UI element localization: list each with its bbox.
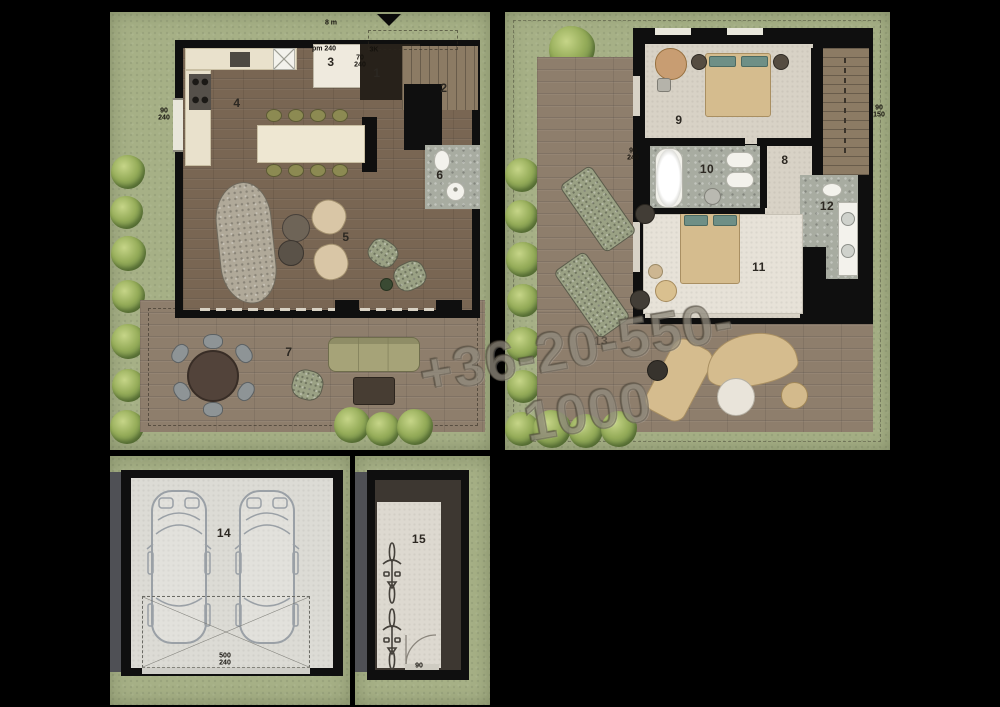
round-rug-icon (655, 48, 687, 80)
bed-pouf-icon (655, 280, 677, 302)
nightstand-icon (773, 54, 789, 70)
tree-icon (110, 410, 144, 444)
toilet-icon (434, 150, 450, 171)
coffee-table-icon (282, 214, 310, 242)
tree-icon (111, 155, 145, 189)
window-icon (727, 28, 763, 35)
pillow-icon (684, 215, 708, 226)
coffee-table-icon (278, 240, 304, 266)
sink-icon (446, 182, 465, 201)
sink-icon (841, 244, 855, 258)
bathtub-icon (655, 148, 683, 208)
garage-plan (110, 456, 350, 705)
door-opening (405, 664, 439, 670)
ground-floor-plan (110, 12, 490, 450)
side-table-icon (630, 290, 650, 310)
stair-arrow (844, 58, 846, 158)
dining-chair-icon (310, 164, 326, 177)
retaining-wall (355, 472, 367, 672)
dining-chair-icon (332, 164, 348, 177)
window-icon (173, 98, 183, 152)
kitchen-appliance (230, 52, 250, 67)
tree-icon (334, 407, 370, 443)
pillow-icon (713, 215, 737, 226)
stove-icon (189, 74, 211, 110)
sink-icon (726, 152, 754, 168)
round-pouf-icon (717, 378, 755, 416)
entrance-marker-icon (377, 14, 401, 26)
sliding-door-line (200, 308, 436, 311)
staircase (823, 48, 869, 178)
stool-icon (704, 188, 721, 205)
round-pouf-icon (781, 382, 808, 409)
stool-icon (657, 78, 671, 92)
tree-icon (397, 409, 433, 445)
dining-table (257, 125, 365, 163)
sink-icon (726, 172, 754, 188)
garage-door (142, 667, 310, 674)
nightstand-icon (691, 54, 707, 70)
bed-pouf-icon (648, 264, 663, 279)
wall-column (858, 175, 872, 291)
outdoor-coffee-table-icon (353, 377, 395, 405)
upper-floor-plan (505, 12, 890, 450)
plant-icon (380, 278, 393, 291)
outdoor-chair-icon (203, 334, 223, 349)
storage-plan (355, 456, 490, 705)
tree-icon (569, 414, 603, 448)
porch-outline (368, 30, 458, 50)
wall-stub (436, 300, 462, 318)
tree-icon (111, 236, 146, 271)
bicycle-icon (381, 608, 403, 670)
stair-core (404, 84, 442, 150)
dining-chair-icon (288, 109, 304, 122)
terrace-door-icon (633, 76, 640, 116)
outdoor-table-icon (187, 350, 239, 402)
side-table-icon (647, 360, 668, 381)
outdoor-sofa-icon (328, 337, 420, 372)
dining-chair-icon (310, 109, 326, 122)
dining-chair-icon (288, 164, 304, 177)
interior-wall (645, 138, 745, 146)
tree-icon (533, 410, 571, 448)
outdoor-chair-icon (203, 402, 223, 417)
bicycle-icon (381, 542, 403, 604)
dining-chair-icon (266, 109, 282, 122)
window-icon (655, 28, 691, 35)
tree-icon (366, 412, 400, 446)
kitchen-sink-icon (273, 48, 295, 70)
maneuver-outline (142, 596, 310, 668)
pillow-icon (709, 56, 736, 67)
interior-wall (650, 208, 765, 214)
floorplan-sheet: 123456789101112131415 8 m90 240pm 24070 … (0, 0, 1000, 707)
side-table-icon (635, 204, 655, 224)
dining-chair-icon (266, 164, 282, 177)
tree-icon (110, 196, 143, 229)
toilet-icon (822, 183, 842, 197)
pillow-icon (741, 56, 768, 67)
interior-wall (760, 145, 767, 208)
retaining-wall (110, 472, 121, 672)
sink-icon (841, 212, 855, 226)
wall-stub (335, 300, 359, 318)
dining-chair-icon (332, 109, 348, 122)
door-swing-icon (405, 634, 437, 666)
